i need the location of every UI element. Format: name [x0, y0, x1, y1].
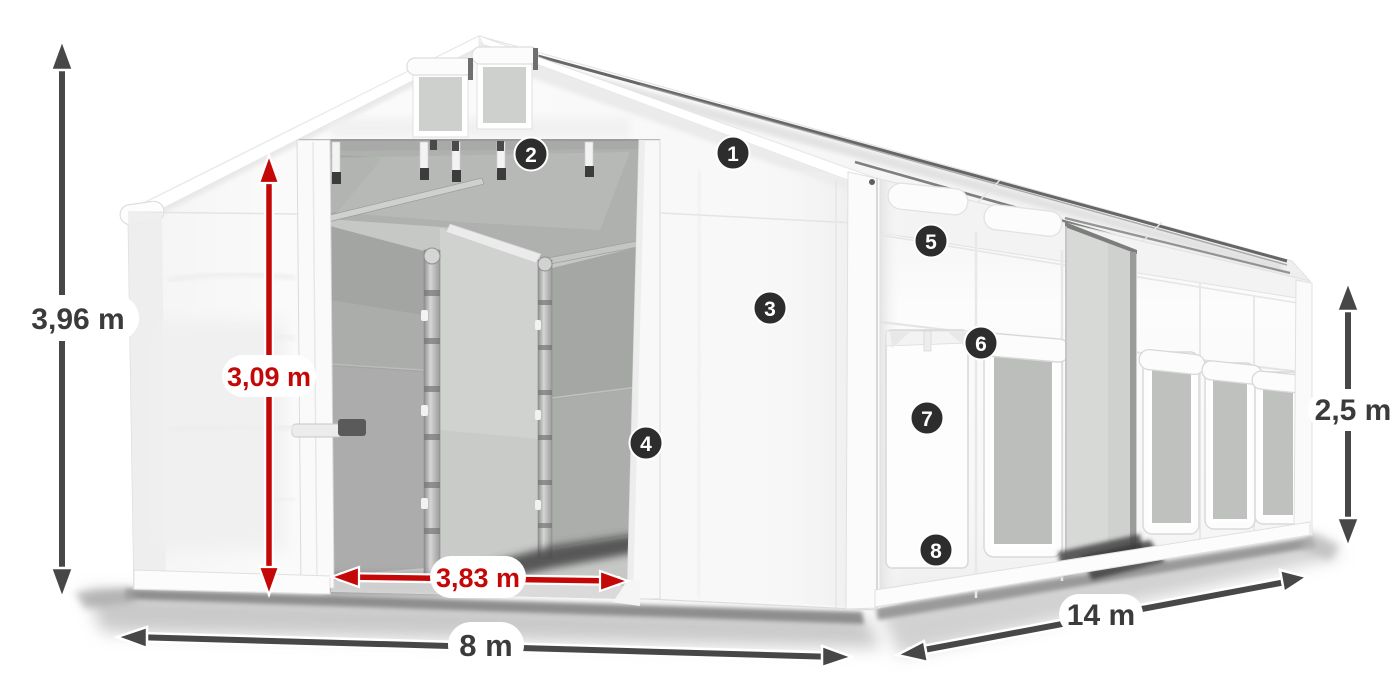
svg-text:8: 8 — [930, 540, 942, 563]
svg-text:7: 7 — [921, 408, 933, 431]
svg-text:5: 5 — [925, 231, 937, 254]
svg-text:1: 1 — [727, 143, 739, 166]
svg-text:3,83 m: 3,83 m — [436, 563, 520, 593]
svg-text:14 m: 14 m — [1067, 599, 1135, 632]
svg-text:6: 6 — [975, 333, 987, 356]
svg-text:8 m: 8 m — [459, 628, 512, 663]
svg-text:3: 3 — [764, 298, 776, 321]
svg-text:2,5 m: 2,5 m — [1315, 394, 1392, 427]
svg-text:3,96 m: 3,96 m — [31, 303, 124, 336]
svg-text:4: 4 — [640, 433, 652, 456]
svg-text:2: 2 — [525, 144, 537, 167]
svg-text:3,09 m: 3,09 m — [227, 362, 311, 392]
